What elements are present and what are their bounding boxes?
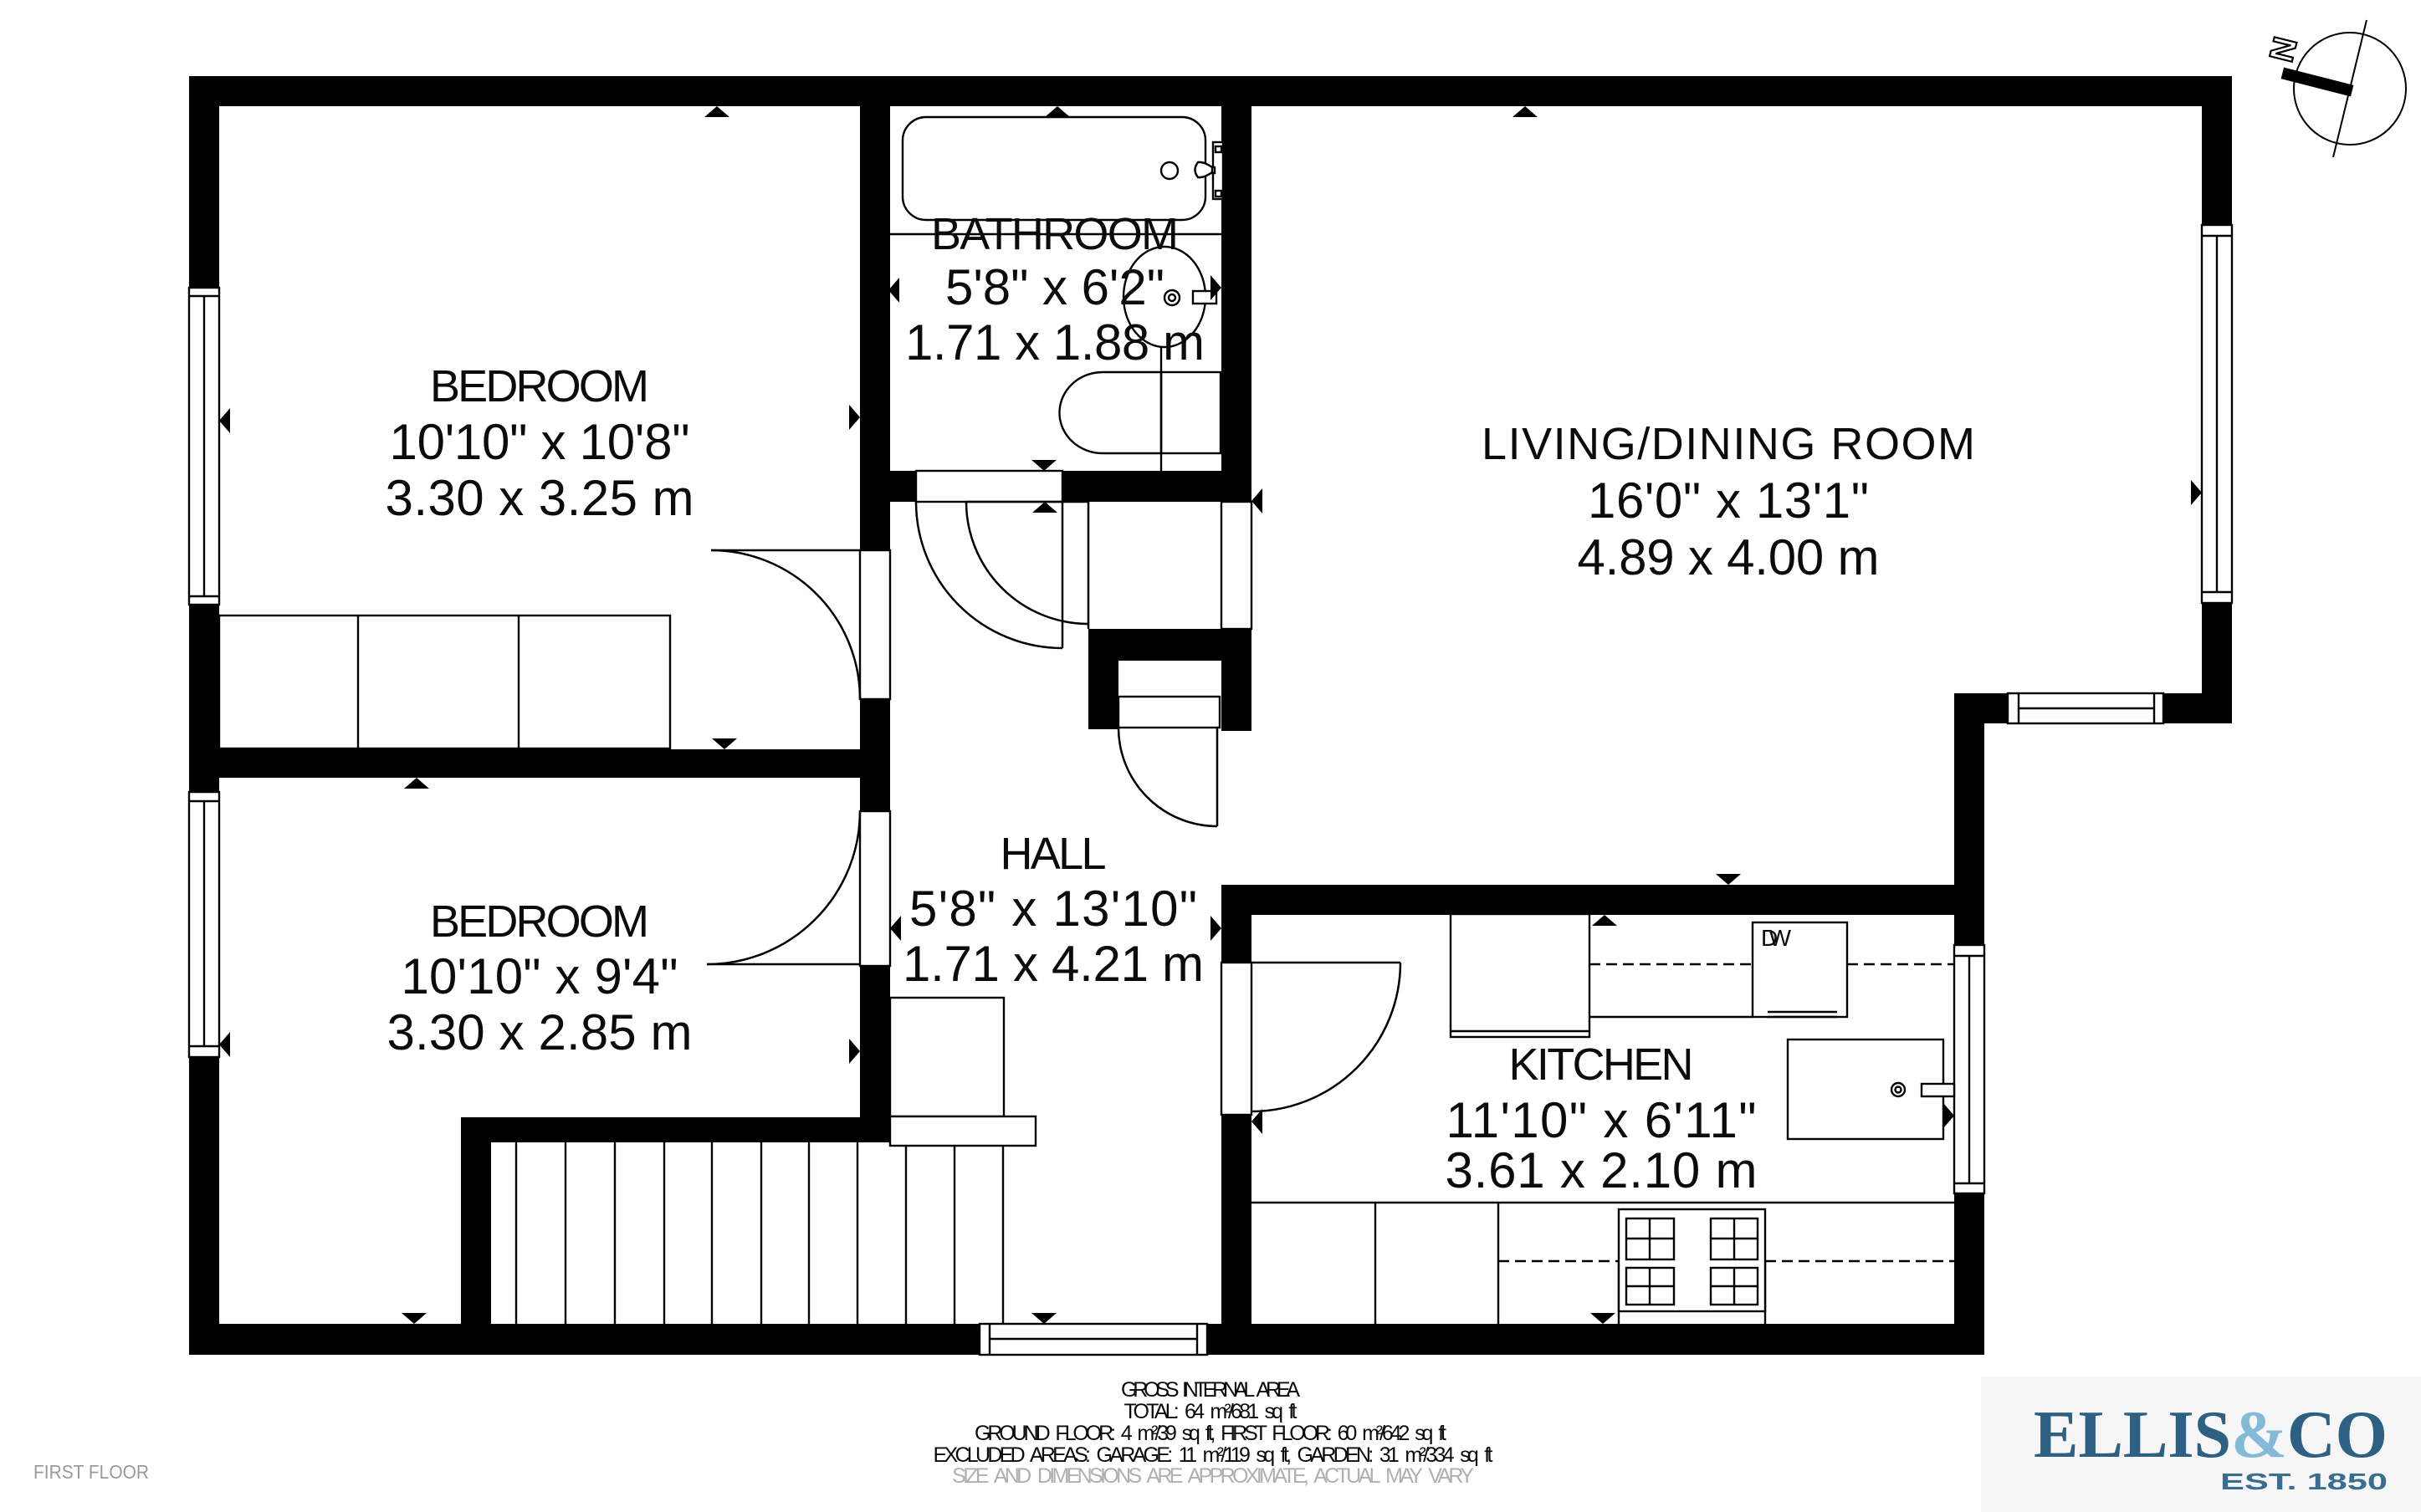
svg-text:TOTAL: 64 m²/681 sq ft: TOTAL: 64 m²/681 sq ft bbox=[1124, 1400, 1298, 1423]
svg-text:3.30 x 3.25 m: 3.30 x 3.25 m bbox=[386, 470, 694, 526]
svg-text:10'10" x 9'4": 10'10" x 9'4" bbox=[402, 948, 678, 1004]
svg-text:5'8" x 6'2": 5'8" x 6'2" bbox=[945, 259, 1164, 315]
svg-text:KITCHEN: KITCHEN bbox=[1509, 1039, 1694, 1090]
svg-text:5'8" x 13'10": 5'8" x 13'10" bbox=[909, 881, 1197, 937]
svg-text:GROUND FLOOR: 4 m²/39 sq ft, F: GROUND FLOOR: 4 m²/39 sq ft, FIRST FLOOR… bbox=[975, 1422, 1446, 1445]
svg-text:ELLIS&CO: ELLIS&CO bbox=[2034, 1398, 2388, 1472]
svg-text:BEDROOM: BEDROOM bbox=[430, 361, 649, 411]
svg-text:3.30 x 2.85 m: 3.30 x 2.85 m bbox=[387, 1004, 693, 1060]
svg-text:FIRST FLOOR: FIRST FLOOR bbox=[33, 1461, 149, 1483]
svg-text:GROSS INTERNAL AREA: GROSS INTERNAL AREA bbox=[1121, 1378, 1300, 1402]
svg-text:1.71 x 4.21 m: 1.71 x 4.21 m bbox=[903, 936, 1204, 992]
svg-text:BEDROOM: BEDROOM bbox=[430, 896, 649, 947]
svg-text:16'0" x 13'1": 16'0" x 13'1" bbox=[1588, 472, 1869, 529]
svg-text:11'10" x 6'11": 11'10" x 6'11" bbox=[1446, 1092, 1757, 1148]
svg-text:10'10" x 10'8": 10'10" x 10'8" bbox=[390, 414, 690, 470]
svg-text:EST. 1850: EST. 1850 bbox=[2220, 1469, 2388, 1494]
svg-text:DW: DW bbox=[1761, 925, 1792, 951]
svg-text:HALL: HALL bbox=[1001, 829, 1107, 879]
svg-text:LIVING/DINING ROOM: LIVING/DINING ROOM bbox=[1482, 419, 1975, 469]
svg-text:BATHROOM: BATHROOM bbox=[931, 209, 1179, 259]
svg-text:1.71 x 1.88 m: 1.71 x 1.88 m bbox=[905, 314, 1205, 370]
svg-text:EXCLUDED AREAS: GARAGE: 11 m²/: EXCLUDED AREAS: GARAGE: 11 m²/119 sq ft,… bbox=[934, 1443, 1493, 1467]
svg-text:SIZE AND DIMENSIONS ARE APPROX: SIZE AND DIMENSIONS ARE APPROXIMATE, ACT… bbox=[952, 1464, 1474, 1488]
svg-text:4.89 x 4.00 m: 4.89 x 4.00 m bbox=[1578, 529, 1880, 585]
svg-text:3.61 x 2.10 m: 3.61 x 2.10 m bbox=[1446, 1142, 1758, 1198]
